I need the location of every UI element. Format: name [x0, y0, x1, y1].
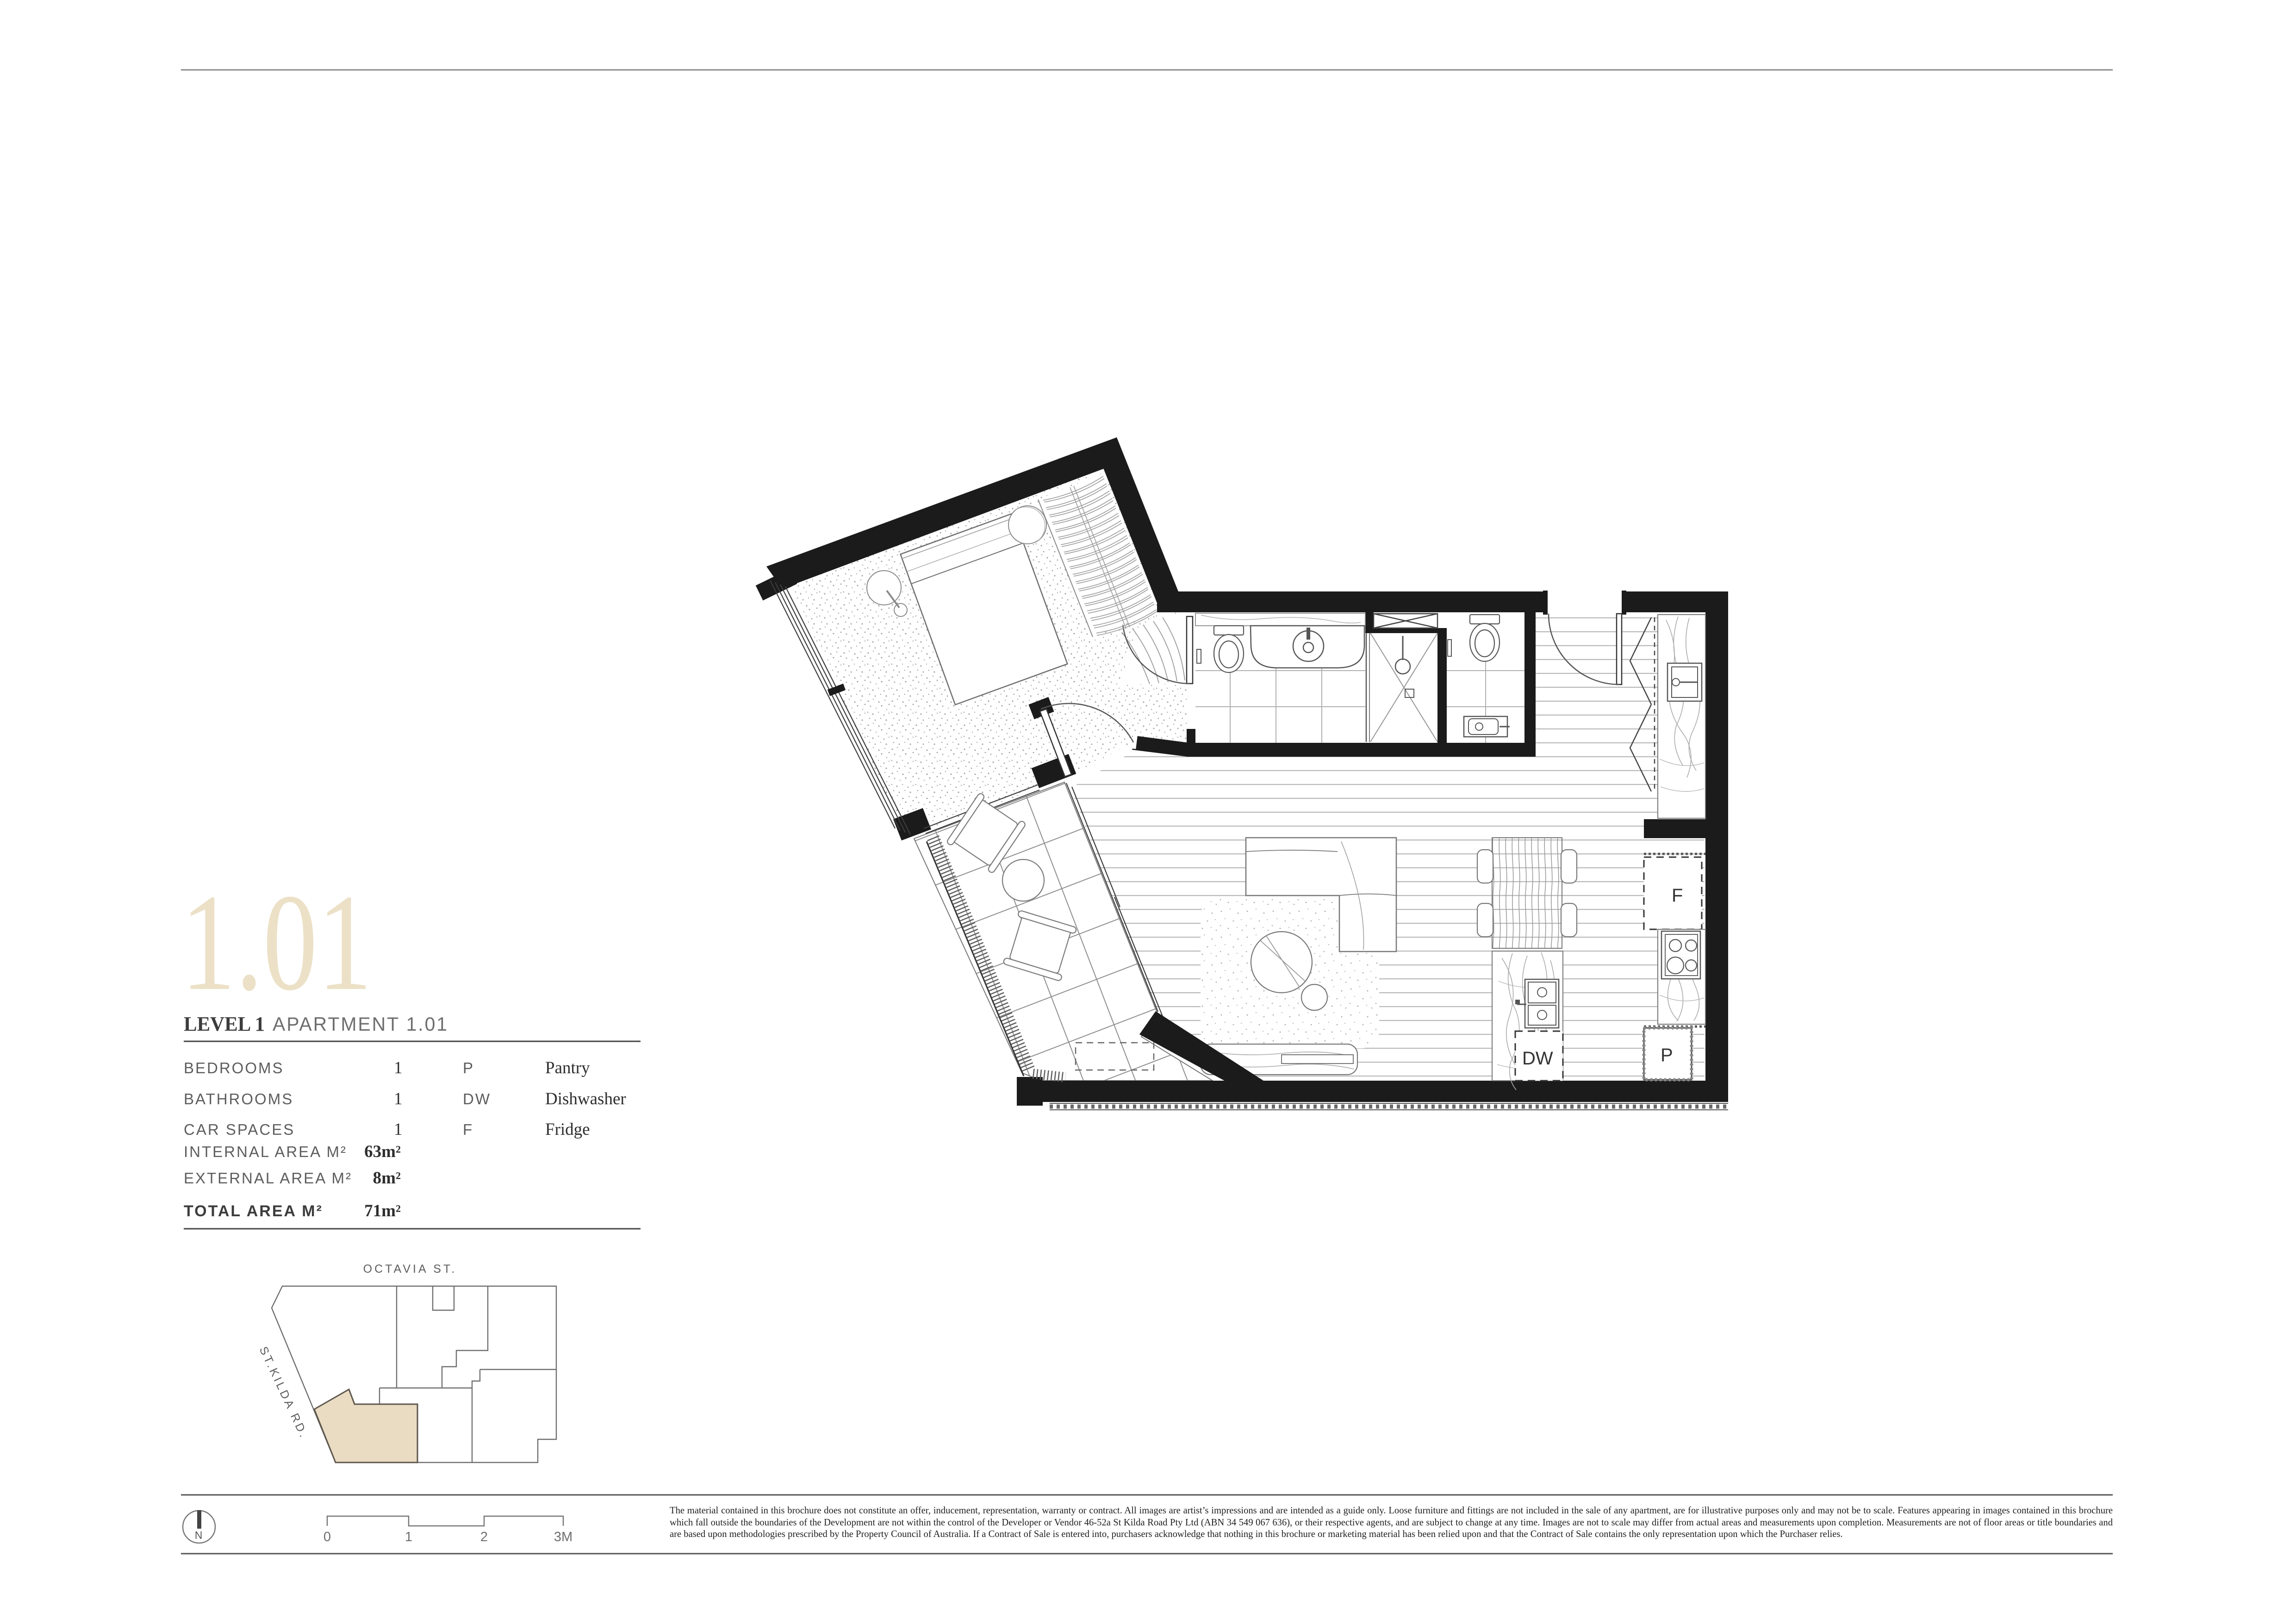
svg-text:1.01: 1.01	[181, 865, 372, 1019]
svg-text:8m²: 8m²	[373, 1169, 401, 1188]
svg-text:N: N	[195, 1529, 203, 1541]
svg-text:1: 1	[394, 1089, 403, 1108]
svg-text:1: 1	[405, 1530, 412, 1544]
svg-text:EXTERNAL AREA M²: EXTERNAL AREA M²	[184, 1170, 352, 1187]
svg-text:P: P	[463, 1059, 474, 1076]
svg-text:71m²: 71m²	[364, 1201, 401, 1220]
svg-text:P: P	[1661, 1045, 1673, 1065]
svg-text:2: 2	[480, 1530, 488, 1544]
svg-text:Pantry: Pantry	[545, 1058, 590, 1077]
svg-text:BEDROOMS: BEDROOMS	[184, 1059, 284, 1076]
svg-text:F: F	[1672, 885, 1683, 906]
svg-text:3M: 3M	[554, 1530, 572, 1544]
svg-text:DW: DW	[1522, 1048, 1553, 1069]
svg-text:BATHROOMS: BATHROOMS	[184, 1090, 293, 1108]
svg-text:1: 1	[394, 1120, 403, 1139]
svg-text:63m²: 63m²	[364, 1142, 401, 1161]
svg-text:Dishwasher: Dishwasher	[545, 1089, 626, 1108]
svg-text:LEVEL 1: LEVEL 1	[184, 1013, 265, 1035]
svg-text:Fridge: Fridge	[545, 1120, 590, 1139]
svg-text:1: 1	[394, 1058, 403, 1077]
svg-text:OCTAVIA ST.: OCTAVIA ST.	[363, 1263, 457, 1276]
svg-text:DW: DW	[463, 1090, 491, 1108]
svg-text:APARTMENT 1.01: APARTMENT 1.01	[273, 1013, 448, 1035]
svg-text:0: 0	[324, 1530, 331, 1544]
svg-text:TOTAL AREA M²: TOTAL AREA M²	[184, 1202, 323, 1220]
svg-text:F: F	[463, 1121, 473, 1138]
svg-text:INTERNAL AREA M²: INTERNAL AREA M²	[184, 1143, 347, 1160]
svg-text:CAR SPACES: CAR SPACES	[184, 1121, 295, 1138]
